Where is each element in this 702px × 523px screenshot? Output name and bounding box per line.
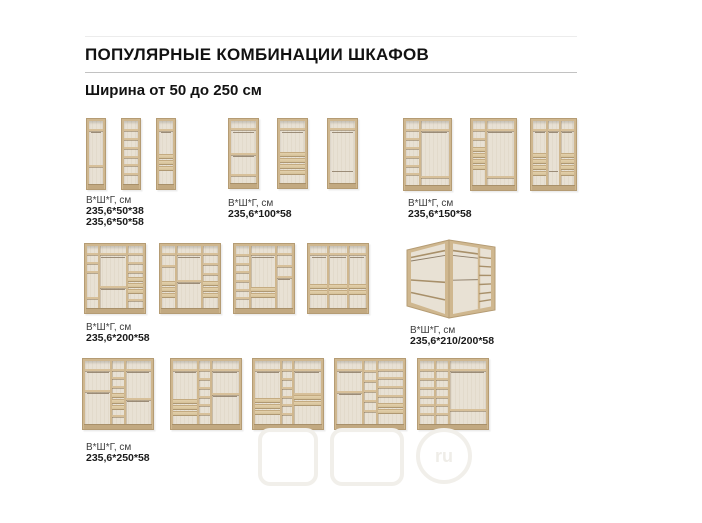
shelf [231,153,256,155]
shelf [487,129,514,131]
hanging-rod [175,372,196,373]
column-divider [327,246,329,308]
drawer [159,160,173,165]
shelf [406,156,420,158]
shelf [330,128,355,130]
shelf [212,369,239,371]
shelf [420,413,435,415]
title-underline [85,72,577,73]
shelf [128,253,143,255]
shelf [277,276,292,278]
shelf [162,253,176,255]
shelf [294,369,321,371]
wardrobe-interior [173,361,239,424]
hanging-rod [562,132,572,133]
plinth [88,184,104,189]
hanging-rod [535,132,545,133]
drawer [533,153,547,158]
hanging-rod [127,401,149,402]
shelf [450,409,486,411]
shelf [126,369,151,371]
shelf [236,263,250,265]
watermark-glyph [258,428,318,486]
drawer [162,293,176,298]
hanging-rod [488,132,512,133]
wardrobe-image [277,118,308,189]
drawer [349,290,366,295]
shelf [236,271,250,273]
shelf [159,129,173,131]
column-divider [249,246,251,308]
shelf [124,138,138,140]
wardrobe-image [121,118,141,190]
hanging-rod [350,257,364,258]
shelf [231,128,256,130]
shelf [337,391,363,393]
shelf [124,147,138,149]
group-label: В*Ш*Г, см235,6*200*58 [86,322,150,344]
shelf [280,128,305,130]
shelf [421,176,449,178]
shelf [236,254,250,256]
watermark-ru-circle: ru [416,428,472,484]
shelf [162,265,176,267]
shelf [378,386,403,388]
shelf [436,404,450,406]
hanging-rod [422,132,447,133]
shelf [236,280,250,282]
shelf [251,253,276,255]
wardrobe-image [233,243,295,314]
drawer [561,159,574,164]
drawer [255,404,281,409]
shelf [349,253,366,255]
page-subtitle: Ширина от 50 до 250 см [85,82,262,99]
wardrobe-interior [337,361,403,424]
hanging-rod [87,393,109,394]
size-value: 235,6*50*58 [86,217,144,228]
wardrobe-image [307,243,369,314]
size-value: 235,6*200*58 [86,333,150,344]
hanging-rod [339,372,361,373]
hanging-rod [339,394,361,395]
corner-wardrobe-svg [405,238,497,320]
plinth [158,184,174,189]
hanging-rod [332,132,353,133]
shelf [173,369,198,371]
shelf [487,176,514,178]
drawer [173,411,198,416]
shelf [89,165,103,167]
wardrobe-interior [87,246,143,308]
drawer [280,170,305,175]
hanging-rod [332,171,353,172]
wardrobe-interior [533,121,574,185]
shelf [406,165,420,167]
shelf [124,164,138,166]
shelf [406,138,420,140]
drawer [378,403,403,408]
wardrobe-image [470,118,517,191]
shelf [124,129,138,131]
shelf [420,387,435,389]
size-value: 235,6*100*58 [228,209,292,220]
wardrobe-interior [310,246,366,308]
wardrobe-image [228,118,259,189]
column-divider [347,246,349,308]
plinth [309,308,367,313]
shelf [436,369,450,371]
wardrobe-interior [236,246,292,308]
drawer [128,289,143,294]
catalog-page: ПОПУЛЯРНЫЕ КОМБИНАЦИИ ШКАФОВ Ширина от 5… [0,0,702,523]
shelf [124,156,138,158]
plinth [405,185,450,190]
drawer [349,284,366,289]
shelf [255,369,281,371]
wardrobe-image [403,118,452,191]
shelf [203,273,218,275]
shelf [203,253,218,255]
drawer [203,287,218,292]
hanging-rod [330,257,345,258]
drawer [159,166,173,171]
size-value: 235,6*210/200*58 [410,336,494,347]
top-divider [85,36,577,37]
drawer [280,158,305,163]
shelf [128,299,143,301]
wardrobe-image [159,243,221,314]
group-label: В*Ш*Г, см235,6*150*58 [408,198,472,220]
wardrobe-interior [162,246,218,308]
hanging-rod [178,257,200,258]
shelf [128,262,143,264]
shelf [420,404,435,406]
shelf [378,395,403,397]
wardrobe-image [327,118,358,189]
plinth [472,185,515,190]
shelf [310,253,328,255]
plinth [86,308,144,313]
wardrobe-image [156,118,176,190]
shelf [177,253,202,255]
hanging-rod [101,289,125,290]
wardrobe-interior [124,121,138,184]
hanging-rod [233,156,254,157]
wardrobe-interior [420,361,486,424]
hanging-rod [127,372,149,373]
shelf [212,393,239,395]
hanging-rod [549,132,559,133]
drawer [533,159,547,164]
drawer [561,171,574,176]
wardrobe-interior [159,121,173,184]
hanging-rod [213,372,237,373]
shelf [420,378,435,380]
shelf [277,265,292,267]
plinth [235,308,293,313]
wardrobe-interior [255,361,321,424]
hanging-rod [257,372,279,373]
shelf [85,369,111,371]
drawer [561,165,574,170]
drawer [255,398,281,403]
drawer [251,287,276,292]
hanging-rod [87,372,109,373]
group-label: В*Ш*Г, см235,6*50*38235,6*50*58 [86,195,144,228]
group-label: В*Ш*Г, см235,6*100*58 [228,198,292,220]
shelf [277,253,292,255]
page-title: ПОПУЛЯРНЫЕ КОМБИНАЦИИ ШКАФОВ [85,45,429,65]
shelf [236,289,250,291]
shelf [378,377,403,379]
drawer [378,409,403,414]
hanging-rod [295,372,319,373]
hanging-rod [213,396,237,397]
shelf [561,129,574,131]
shelf [436,413,450,415]
wardrobe-interior [330,121,355,183]
drawer [294,401,321,406]
hanging-rod [91,132,101,133]
wardrobe-image [530,118,577,191]
wardrobe-interior [85,361,151,424]
shelf [420,396,435,398]
drawer [329,284,347,289]
drawer [533,171,547,176]
size-value: 235,6*150*58 [408,209,472,220]
drawer [203,281,218,286]
wardrobe-image [86,118,106,190]
plinth [230,183,257,188]
watermark: ru [258,428,472,486]
shelf [420,369,435,371]
plinth [532,185,575,190]
drawer [251,293,276,298]
drawer [159,154,173,159]
wardrobe-interior [280,121,305,183]
wardrobe-image [417,358,489,430]
shelf [421,129,449,131]
corner-wardrobe-image [405,238,497,320]
shelf [406,173,420,175]
plinth [279,183,306,188]
drawer [280,152,305,157]
plinth [172,424,240,429]
wardrobe-image [84,243,146,314]
shelf [236,297,250,299]
hanging-rod [278,279,290,280]
shelf [89,129,103,131]
drawer [329,290,347,295]
shelf [128,271,143,273]
shelf [126,398,151,400]
wardrobe-interior [473,121,514,185]
shelf [337,369,363,371]
drawer [310,284,328,289]
shelf [378,369,403,371]
watermark-glyph [330,428,404,486]
shelf [329,253,347,255]
plinth [84,424,152,429]
drawer [533,165,547,170]
shelf [85,390,111,392]
drawer [128,283,143,288]
shelf [436,378,450,380]
plinth [161,308,219,313]
drawer [173,399,198,404]
shelf [436,396,450,398]
shelf [124,173,138,175]
watermark-text: ru [435,446,453,467]
wardrobe-image [82,358,154,430]
plinth [329,183,356,188]
hanging-rod [101,257,125,258]
drawer [310,290,328,295]
hanging-rod [161,132,171,133]
shelf [231,174,256,176]
column-divider [98,246,100,308]
hanging-rod [549,171,559,172]
drawer [280,164,305,169]
shelf [436,387,450,389]
shelf [533,129,547,131]
drawer [203,293,218,298]
size-value: 235,6*250*58 [86,453,150,464]
hanging-rod [451,372,484,373]
shelf [406,147,420,149]
drawer [162,287,176,292]
wardrobe-interior [231,121,256,183]
column-divider [201,246,203,308]
drawer [173,405,198,410]
hanging-rod [252,257,274,258]
drawer [561,153,574,158]
shelf [450,369,486,371]
hanging-rod [233,132,254,133]
shelf [203,263,218,265]
drawer [162,281,176,286]
shelf [406,129,420,131]
shelf [177,280,202,282]
hanging-rod [312,257,326,258]
wardrobe-image [334,358,406,430]
wardrobe-interior [406,121,449,185]
group-label: В*Ш*Г, см235,6*210/200*58 [410,325,494,347]
wardrobe-interior [89,121,103,184]
drawer [294,395,321,400]
group-label: В*Ш*Г, см235,6*250*58 [86,442,150,464]
hanging-rod [178,283,200,284]
drawer [128,277,143,282]
hanging-rod [282,132,303,133]
plinth [123,184,139,189]
drawer [255,410,281,415]
wardrobe-image [170,358,242,430]
column-divider [175,246,177,308]
wardrobe-image [252,358,324,430]
shelf [100,253,127,255]
shelf [100,286,127,288]
